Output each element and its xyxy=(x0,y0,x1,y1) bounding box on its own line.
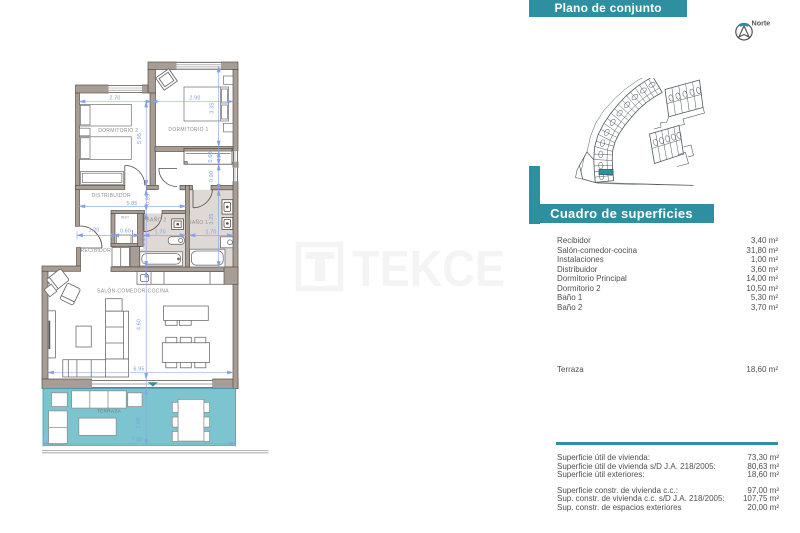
svg-text:INST: INST xyxy=(121,216,130,220)
svg-text:5.85: 5.85 xyxy=(126,201,137,207)
svg-text:TERRAZA: TERRAZA xyxy=(97,409,122,414)
svg-text:1.70: 1.70 xyxy=(155,229,166,235)
svg-text:2.60: 2.60 xyxy=(136,418,142,429)
svg-text:2.70: 2.70 xyxy=(109,96,120,102)
svg-text:DORMITORIO 2: DORMITORIO 2 xyxy=(98,128,138,134)
svg-text:1.20: 1.20 xyxy=(88,228,99,234)
svg-text:1.70: 1.70 xyxy=(205,229,216,235)
svg-text:2.90: 2.90 xyxy=(189,95,200,101)
svg-text:DORMITORIO 1: DORMITORIO 1 xyxy=(168,127,208,133)
svg-text:RECIBIDOR: RECIBIDOR xyxy=(81,248,112,254)
svg-text:7.00: 7.00 xyxy=(131,437,142,443)
svg-text:0.60: 0.60 xyxy=(208,151,214,162)
svg-text:4.60: 4.60 xyxy=(137,319,143,330)
svg-text:SALÓN-COMEDOR-COCINA: SALÓN-COMEDOR-COCINA xyxy=(97,288,169,295)
svg-text:3.25: 3.25 xyxy=(209,213,215,224)
svg-text:BAÑO 2: BAÑO 2 xyxy=(146,216,166,223)
svg-text:0.60: 0.60 xyxy=(120,229,131,235)
svg-text:6.95: 6.95 xyxy=(133,367,144,373)
svg-text:DISTRIBUIDOR: DISTRIBUIDOR xyxy=(91,193,131,199)
svg-text:0.90: 0.90 xyxy=(209,171,215,182)
svg-text:3.35: 3.35 xyxy=(210,102,216,113)
svg-text:Norte: Norte xyxy=(752,19,771,28)
svg-text:2.20: 2.20 xyxy=(141,234,147,245)
svg-text:0.95: 0.95 xyxy=(145,194,151,205)
svg-text:BAÑO 1: BAÑO 1 xyxy=(188,219,208,226)
svg-text:5.95: 5.95 xyxy=(137,133,143,144)
